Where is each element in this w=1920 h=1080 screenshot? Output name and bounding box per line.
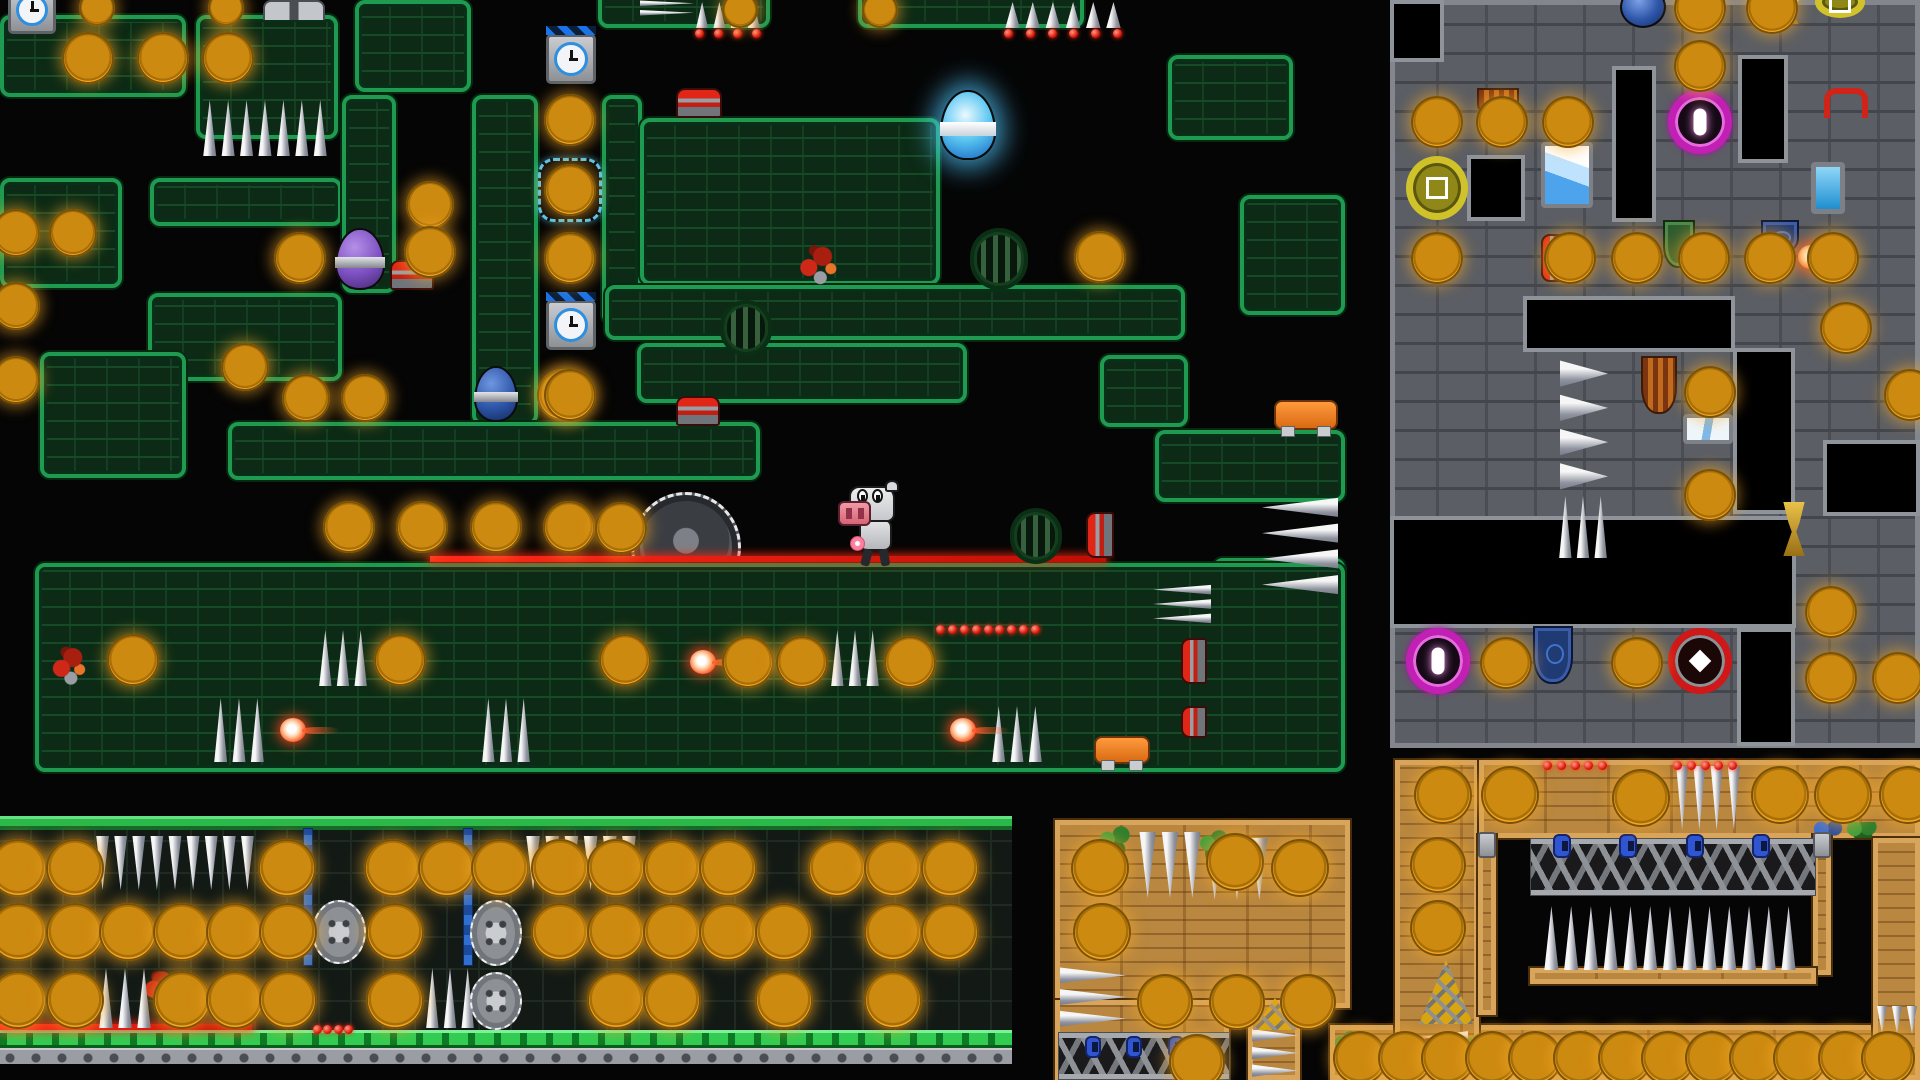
red-bumper-vertical — [1181, 706, 1207, 738]
coin — [470, 501, 522, 553]
coin — [1807, 232, 1859, 284]
coin — [1480, 637, 1532, 689]
spike — [1153, 613, 1211, 624]
warning-light — [714, 29, 723, 38]
spike — [1662, 906, 1679, 970]
coin — [864, 971, 922, 1029]
warning-lights — [936, 624, 1040, 635]
spike — [1262, 522, 1338, 545]
warning-light — [1673, 761, 1682, 770]
wood-platform — [1478, 835, 1496, 1015]
spike — [1602, 906, 1619, 970]
coin — [755, 971, 813, 1029]
coin — [46, 839, 104, 897]
coin — [202, 32, 254, 84]
spike — [336, 630, 351, 686]
spikes-up — [98, 968, 152, 1028]
coin — [544, 369, 596, 421]
spike — [1560, 358, 1608, 389]
green-brick-block — [150, 178, 342, 226]
warning-light — [995, 625, 1004, 634]
spike — [1028, 706, 1043, 762]
spike — [1675, 766, 1689, 830]
coin — [366, 971, 424, 1029]
metal-truss — [1530, 838, 1816, 896]
stone-corridor — [1390, 0, 1444, 62]
coin — [1073, 903, 1131, 961]
spike — [318, 630, 333, 686]
spikes-right — [1252, 1028, 1298, 1078]
spike — [1681, 906, 1698, 970]
coin — [1678, 232, 1730, 284]
coin — [755, 903, 813, 961]
coin — [404, 226, 456, 278]
spike — [830, 630, 845, 686]
fan-trap — [470, 900, 522, 966]
green-brick-block — [40, 352, 186, 478]
spikes-down — [1675, 766, 1741, 830]
warning-light — [960, 625, 969, 634]
spike — [1105, 2, 1122, 28]
coin — [699, 839, 757, 897]
warning-light — [1007, 625, 1016, 634]
warning-light — [1091, 29, 1100, 38]
spike — [213, 698, 228, 762]
coin — [1410, 837, 1466, 893]
spike — [1721, 906, 1738, 970]
spike — [1065, 2, 1082, 28]
stone-corridor — [1823, 440, 1920, 516]
coin — [1861, 1031, 1915, 1080]
coin — [1872, 652, 1920, 704]
coin — [1481, 766, 1539, 824]
coin — [1751, 766, 1809, 824]
coin — [531, 903, 589, 961]
ch-snout — [838, 501, 871, 526]
coin — [595, 502, 647, 554]
spikes-right — [1060, 966, 1126, 1028]
blue-clamp — [1085, 1036, 1101, 1058]
spike — [848, 630, 863, 686]
coin — [587, 903, 645, 961]
spikes-down — [1138, 832, 1202, 898]
red-bumper-vertical — [1181, 638, 1207, 684]
warning-light — [1543, 761, 1552, 770]
warning-light — [948, 625, 957, 634]
spike — [1252, 1046, 1298, 1061]
coin — [1209, 974, 1265, 1030]
fan-trap — [312, 900, 366, 964]
spike — [1780, 906, 1797, 970]
spike — [1891, 1006, 1903, 1034]
spike — [1727, 766, 1741, 830]
ch-flower — [850, 536, 865, 551]
warning-light — [1026, 29, 1035, 38]
warning-light — [972, 625, 981, 634]
spikes-up — [1543, 906, 1797, 970]
warning-light — [323, 1025, 332, 1034]
gate-pad-red — [1668, 628, 1732, 694]
coin — [776, 636, 828, 688]
spike — [313, 100, 328, 156]
spike — [481, 698, 496, 762]
red-handle — [1824, 88, 1868, 118]
green-brick-block — [1168, 55, 1293, 140]
spike — [202, 100, 217, 156]
warning-light — [1714, 761, 1723, 770]
spike — [640, 0, 694, 7]
game-viewport[interactable] — [0, 0, 1920, 1080]
banner-tile-navy — [1533, 626, 1573, 684]
spikes-down — [95, 836, 255, 890]
coin — [0, 356, 40, 404]
spike — [1252, 1028, 1298, 1043]
coin — [531, 839, 589, 897]
warning-light — [1728, 761, 1737, 770]
spikes-up — [1004, 2, 1122, 28]
spike — [1262, 548, 1338, 571]
gate-pad-yellow — [1406, 156, 1468, 220]
fireball-projectile — [280, 716, 340, 744]
spike — [1138, 832, 1157, 898]
coin — [221, 343, 269, 391]
spike — [1622, 906, 1639, 970]
warning-light — [1031, 625, 1040, 634]
spikes-up — [481, 698, 531, 762]
stone-corridor — [1738, 55, 1788, 163]
wall-grate — [970, 228, 1028, 290]
coin — [107, 634, 159, 686]
coin — [643, 903, 701, 961]
green-brick-block — [640, 118, 940, 285]
egg-powerup-glow — [940, 90, 996, 160]
green-brick-block — [605, 285, 1185, 340]
spike — [1153, 584, 1211, 595]
warning-light — [1557, 761, 1566, 770]
coin — [206, 903, 264, 961]
coin — [471, 839, 529, 897]
green-brick-block — [1155, 430, 1345, 502]
coin — [1805, 652, 1857, 704]
ch-ear — [885, 480, 899, 492]
spikes-up — [318, 630, 368, 686]
warning-light — [1004, 29, 1013, 38]
coin — [808, 839, 866, 897]
coin — [1612, 769, 1670, 827]
spike — [695, 2, 709, 28]
warning-light — [334, 1025, 343, 1034]
orange-roller — [1094, 736, 1150, 764]
coin — [153, 903, 211, 961]
spike — [1876, 1006, 1888, 1034]
coin — [1414, 766, 1472, 824]
warning-lights — [313, 1024, 353, 1035]
blue-clamp — [1553, 834, 1571, 858]
warning-light — [1701, 761, 1710, 770]
coin — [258, 839, 316, 897]
wall-grate — [720, 300, 772, 356]
coin — [1684, 469, 1736, 521]
picture-tile-sky — [1541, 142, 1593, 208]
green-brick-block — [637, 343, 967, 403]
coin — [599, 634, 651, 686]
fireball-projectile — [950, 716, 1010, 744]
spike — [1044, 2, 1061, 28]
coin — [1271, 839, 1329, 897]
coin — [259, 971, 317, 1029]
red-bumper — [676, 88, 722, 118]
defeated-enemy — [795, 234, 841, 290]
coin — [366, 903, 424, 961]
clock-block — [8, 0, 56, 34]
spike — [1560, 427, 1608, 458]
coin — [1814, 766, 1872, 824]
coin — [1544, 232, 1596, 284]
warning-light — [752, 29, 761, 38]
ch-eye — [872, 489, 883, 503]
spike — [1642, 906, 1659, 970]
coin — [587, 971, 645, 1029]
spikes-down — [1876, 1006, 1918, 1034]
stone-corridor — [1523, 296, 1735, 352]
wood-platform — [1530, 968, 1816, 984]
coin — [364, 839, 422, 897]
coin — [864, 903, 922, 961]
corner-block — [1813, 832, 1831, 858]
coin — [544, 164, 596, 216]
warning-light — [1687, 761, 1696, 770]
coin — [1611, 637, 1663, 689]
coin — [137, 32, 189, 84]
warning-light — [344, 1025, 353, 1034]
vines — [1843, 822, 1881, 838]
spike — [353, 630, 368, 686]
stone-corridor — [1467, 155, 1525, 221]
coin — [406, 181, 454, 229]
coin — [46, 903, 104, 961]
coin — [1280, 974, 1336, 1030]
coin — [921, 839, 979, 897]
coin — [544, 94, 596, 146]
coin — [341, 374, 389, 422]
spikes-left — [1262, 496, 1338, 596]
laser-beam — [430, 556, 1106, 562]
green-brick-block — [228, 422, 760, 480]
clock-block — [546, 300, 596, 350]
spike — [1160, 832, 1179, 898]
spike — [1692, 766, 1706, 830]
spike — [167, 836, 182, 890]
orange-roller — [1274, 400, 1338, 430]
coin — [206, 971, 264, 1029]
coin — [1542, 96, 1594, 148]
coin — [1476, 96, 1528, 148]
spike — [1593, 496, 1608, 558]
spike — [1060, 966, 1126, 985]
coin — [1410, 900, 1466, 956]
spike — [1153, 598, 1211, 609]
spike — [240, 836, 255, 890]
stone-corridor — [1612, 66, 1656, 222]
coin — [323, 501, 375, 553]
warning-light — [936, 625, 945, 634]
picture-tile-panel — [1811, 162, 1845, 214]
blue-clamp — [1126, 1036, 1142, 1058]
spike — [1701, 906, 1718, 970]
spikes-up — [1558, 496, 1608, 558]
coin — [274, 232, 326, 284]
spike — [231, 698, 246, 762]
player-character — [845, 486, 901, 566]
blue-clamp — [1686, 834, 1704, 858]
spike — [1004, 2, 1021, 28]
warning-light — [1598, 761, 1607, 770]
coin — [259, 903, 317, 961]
coin — [1411, 232, 1463, 284]
coin — [864, 839, 922, 897]
coin — [418, 839, 476, 897]
spike — [257, 100, 272, 156]
banner-tile-rust — [1641, 356, 1677, 414]
spike — [239, 100, 254, 156]
clock-block — [546, 34, 596, 84]
coin — [62, 32, 114, 84]
red-bumper-vertical — [1086, 512, 1114, 558]
spike — [1560, 461, 1608, 492]
spike — [1583, 906, 1600, 970]
warning-light — [1584, 761, 1593, 770]
coin — [543, 501, 595, 553]
coin — [1611, 232, 1663, 284]
warning-light — [313, 1025, 322, 1034]
grey-pillars — [263, 0, 325, 20]
spike — [117, 968, 133, 1028]
warning-light — [1113, 29, 1122, 38]
warning-light — [1048, 29, 1057, 38]
coin — [49, 209, 97, 257]
coin — [1071, 839, 1129, 897]
warning-light — [1571, 761, 1580, 770]
coin — [1744, 232, 1796, 284]
spike — [276, 100, 291, 156]
spike — [136, 968, 152, 1028]
picture-tile-ice — [1683, 414, 1733, 444]
spikes-left — [1153, 584, 1211, 624]
spike — [1576, 496, 1591, 558]
warning-lights — [1543, 760, 1607, 771]
stone-corridor — [1733, 348, 1795, 514]
warning-light — [1069, 29, 1078, 38]
coin — [1411, 96, 1463, 148]
coin — [884, 636, 936, 688]
spike — [1543, 906, 1560, 970]
coin — [921, 903, 979, 961]
spike — [186, 836, 201, 890]
spike — [1906, 1006, 1918, 1034]
spikes-up — [213, 698, 265, 762]
spike — [204, 836, 219, 890]
spikes-up — [202, 100, 328, 156]
conveyor-belt — [0, 1030, 1012, 1048]
coin — [1674, 40, 1726, 92]
spike — [1741, 906, 1758, 970]
ch-leg — [879, 548, 891, 566]
coin — [1137, 974, 1193, 1030]
coin — [643, 971, 701, 1029]
coin — [587, 839, 645, 897]
green-brick-block — [1240, 195, 1345, 315]
spike — [222, 836, 237, 890]
spike — [425, 968, 440, 1028]
spike — [1085, 2, 1102, 28]
coin — [153, 971, 211, 1029]
ch-leg — [860, 548, 873, 567]
spike — [1558, 496, 1573, 558]
blue-clamp — [1752, 834, 1770, 858]
coin — [1820, 302, 1872, 354]
green-brick-block — [355, 0, 471, 92]
spike — [1262, 573, 1338, 596]
spikes-right — [640, 0, 694, 16]
metal-rail — [0, 1048, 1012, 1064]
spike — [1710, 766, 1724, 830]
warning-light — [733, 29, 742, 38]
warning-lights — [1004, 28, 1122, 39]
spike — [499, 698, 514, 762]
warning-light — [1019, 625, 1028, 634]
red-bumper — [676, 396, 720, 426]
coin — [1074, 231, 1126, 283]
coin — [722, 636, 774, 688]
spike — [294, 100, 309, 156]
coin — [374, 634, 426, 686]
coin — [396, 501, 448, 553]
wall-grate — [1010, 508, 1062, 564]
coin — [282, 374, 330, 422]
spike — [443, 968, 458, 1028]
green-ledge — [0, 816, 1012, 830]
warning-lights — [695, 28, 761, 39]
fan-trap — [470, 972, 522, 1030]
coin — [699, 903, 757, 961]
spikes-right — [1560, 358, 1608, 492]
gate-pad-magenta — [1406, 628, 1470, 694]
coin — [46, 971, 104, 1029]
coin — [1805, 586, 1857, 638]
spike — [1009, 706, 1024, 762]
warning-light — [984, 625, 993, 634]
defeated-enemy — [50, 636, 88, 690]
gate-pad-magenta — [1668, 90, 1732, 154]
coin — [99, 903, 157, 961]
spikes-up — [425, 968, 475, 1028]
warning-lights — [1673, 760, 1737, 771]
coin — [544, 232, 596, 284]
spike — [131, 836, 146, 890]
coin — [643, 839, 701, 897]
spike — [220, 100, 235, 156]
spike — [640, 10, 694, 17]
coin — [1206, 833, 1264, 891]
spike — [113, 836, 128, 890]
spike — [1563, 906, 1580, 970]
spike — [1060, 988, 1126, 1007]
spike — [149, 836, 164, 890]
spike — [1760, 906, 1777, 970]
spike — [1560, 392, 1608, 423]
spike — [865, 630, 880, 686]
corner-block — [1478, 832, 1496, 858]
